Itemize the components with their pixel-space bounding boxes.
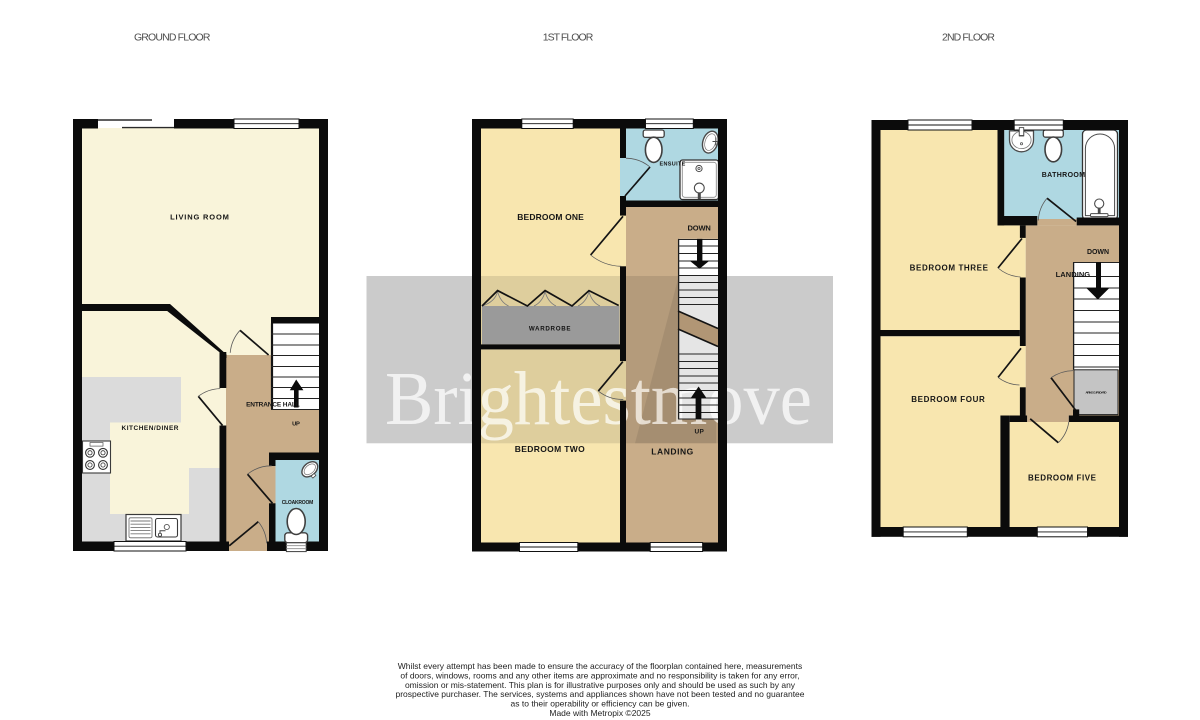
svg-text:Made with Metropix ©2025: Made with Metropix ©2025 [549,708,651,718]
svg-text:Brightestmove: Brightestmove [385,357,812,441]
svg-text:LANDING: LANDING [1056,270,1091,279]
svg-text:KITCHEN/DINER: KITCHEN/DINER [122,425,179,432]
svg-text:1ST FLOOR: 1ST FLOOR [543,32,594,44]
svg-text:DOWN: DOWN [688,224,711,233]
svg-text:DOWN: DOWN [1087,249,1109,256]
svg-text:UP: UP [292,421,300,427]
svg-text:ENSUITE: ENSUITE [660,162,686,168]
svg-text:GROUND FLOOR: GROUND FLOOR [134,32,211,44]
svg-text:BEDROOM THREE: BEDROOM THREE [910,263,989,272]
svg-text:2ND FLOOR: 2ND FLOOR [942,32,995,44]
svg-text:LIVING ROOM: LIVING ROOM [170,212,229,221]
svg-text:BEDROOM FOUR: BEDROOM FOUR [911,395,985,404]
svg-text:CLOAKROOM: CLOAKROOM [282,500,314,506]
svg-text:BEDROOM ONE: BEDROOM ONE [517,212,584,222]
svg-text:ENTRANCE HALL: ENTRANCE HALL [246,402,300,409]
svg-text:UP: UP [695,429,705,436]
svg-text:LANDING: LANDING [651,447,693,457]
svg-text:BEDROOM FIVE: BEDROOM FIVE [1028,473,1097,482]
svg-text:BEDROOM TWO: BEDROOM TWO [515,444,585,454]
svg-text:BATHROOM: BATHROOM [1042,172,1085,179]
svg-text:AIRING CUPBOARD: AIRING CUPBOARD [1086,390,1108,394]
